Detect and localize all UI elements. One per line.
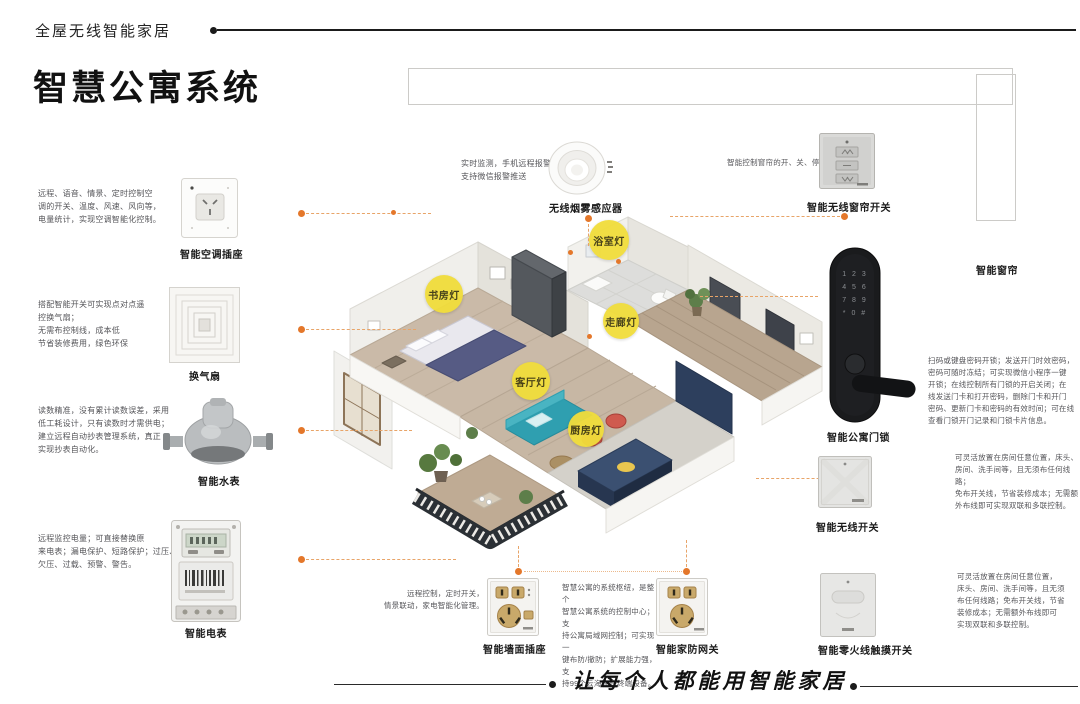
connector-line — [306, 430, 412, 431]
light-badge-corridor: 走廊灯 — [603, 303, 639, 339]
device-label-electric-meter: 智能电表 — [185, 625, 227, 640]
footer-slogan: 让每个人都能用智能家居 — [570, 665, 850, 695]
device-desc-water-meter: 读数精准，没有累计读数误差，采用 低工耗设计，只有读数时才需供电； 建立远程自动… — [38, 404, 173, 456]
connector-line — [306, 213, 431, 214]
device-label-ac-socket: 智能空调插座 — [180, 246, 243, 261]
light-badge-bathroom: 浴室灯 — [589, 220, 629, 260]
wireless-switch-image — [818, 456, 872, 508]
device-desc-electric-meter: 远程监控电量；可直接替换原 来电表；漏电保护、短路保护；过压、 欠压、过载、预警… — [38, 532, 178, 571]
header-line-dot — [210, 27, 217, 34]
apartment-illustration — [330, 205, 840, 605]
light-badge-kitchen: 厨房灯 — [568, 411, 604, 447]
connector-line — [524, 571, 682, 572]
connector-dot — [298, 556, 305, 563]
connector-dot — [568, 250, 573, 255]
ac-socket-image — [181, 178, 238, 238]
door-lock-keypad: 1 2 3 4 5 6 7 8 9 * 0 # — [833, 268, 877, 320]
connector-line — [686, 540, 687, 567]
device-desc-curtain-switch: 智能控制窗帘的开、关、停 — [727, 157, 822, 169]
connector-dot — [587, 334, 592, 339]
connector-dot — [391, 210, 396, 215]
device-label-water-meter: 智能水表 — [198, 473, 240, 488]
device-desc-wall-socket: 远程控制，定时开关， 情景联动，家电智能化管理。 — [334, 588, 484, 612]
vent-fan-image — [169, 287, 240, 363]
smart-apartment-poster: 全屋无线智能家居 智慧公寓系统 智能窗帘 — [0, 0, 1080, 704]
device-label-gateway: 智能家防网关 — [656, 641, 719, 656]
device-label-curtain: 智能窗帘 — [976, 262, 1018, 277]
wall-socket-image — [487, 578, 539, 636]
connector-line — [306, 329, 416, 330]
connector-line — [588, 224, 589, 246]
device-label-touch-switch: 智能零火线触摸开关 — [818, 642, 913, 657]
device-label-curtain-switch: 智能无线窗帘开关 — [807, 199, 891, 214]
water-meter-image — [163, 398, 273, 470]
curtain-switch-image — [819, 133, 875, 189]
device-label-smoke-sensor: 无线烟雾感应器 — [549, 200, 623, 215]
connector-dot — [515, 568, 522, 575]
footer-dot-left — [549, 681, 556, 688]
smoke-sensor-image — [546, 140, 614, 198]
footer-dot-right — [850, 683, 857, 690]
header-tagline: 全屋无线智能家居 — [35, 20, 171, 41]
device-desc-touch-switch: 可灵活放置在房间任意位置， 床头、房间、洗手间等，且无须 布任何线路；免布开关线… — [957, 571, 1067, 631]
connector-line — [306, 559, 456, 560]
connector-dot — [298, 210, 305, 217]
device-label-wall-socket: 智能墙面插座 — [483, 641, 546, 656]
device-label-door-lock: 智能公寓门锁 — [827, 429, 890, 444]
device-desc-door-lock: 扫码或键盘密码开锁；发送开门时效密码， 密码可随时冻结；可实现微信小程序一键 开… — [928, 355, 1076, 427]
device-label-wireless-switch: 智能无线开关 — [816, 519, 879, 534]
device-desc-wireless-switch: 可灵活放置在房间任意位置，床头、 房间、洗手间等，且无须布任何线路； 免布开关线… — [955, 452, 1080, 512]
footer-line-left — [334, 684, 546, 685]
connector-dot — [298, 326, 305, 333]
header-line — [217, 29, 1076, 31]
curtain-outline-box — [976, 74, 1016, 221]
electric-meter-image — [171, 520, 241, 622]
connector-line — [518, 546, 519, 567]
footer-line-right — [860, 686, 1078, 687]
connector-dot — [683, 568, 690, 575]
connector-line — [670, 216, 840, 217]
connector-dot — [841, 213, 848, 220]
connector-line — [700, 296, 818, 297]
page-title: 智慧公寓系统 — [33, 60, 261, 111]
connector-dot — [585, 215, 592, 222]
device-desc-vent-fan: 搭配智能开关可实现点对点遥 控换气扇； 无需布控制线，成本低 节省装修费用，绿色… — [38, 298, 168, 350]
device-label-vent-fan: 换气扇 — [189, 368, 221, 383]
device-desc-ac-socket: 远程、语音、情景、定时控制空 调的开关、温度、风速、风向等， 电量统计，实现空调… — [38, 187, 168, 226]
connector-dot — [616, 259, 621, 264]
banner-outline-box — [408, 68, 1013, 105]
connector-dot — [298, 427, 305, 434]
light-badge-study: 书房灯 — [425, 275, 463, 313]
light-badge-livingroom: 客厅灯 — [512, 362, 550, 400]
gateway-image — [656, 578, 708, 636]
touch-switch-image — [820, 573, 876, 637]
